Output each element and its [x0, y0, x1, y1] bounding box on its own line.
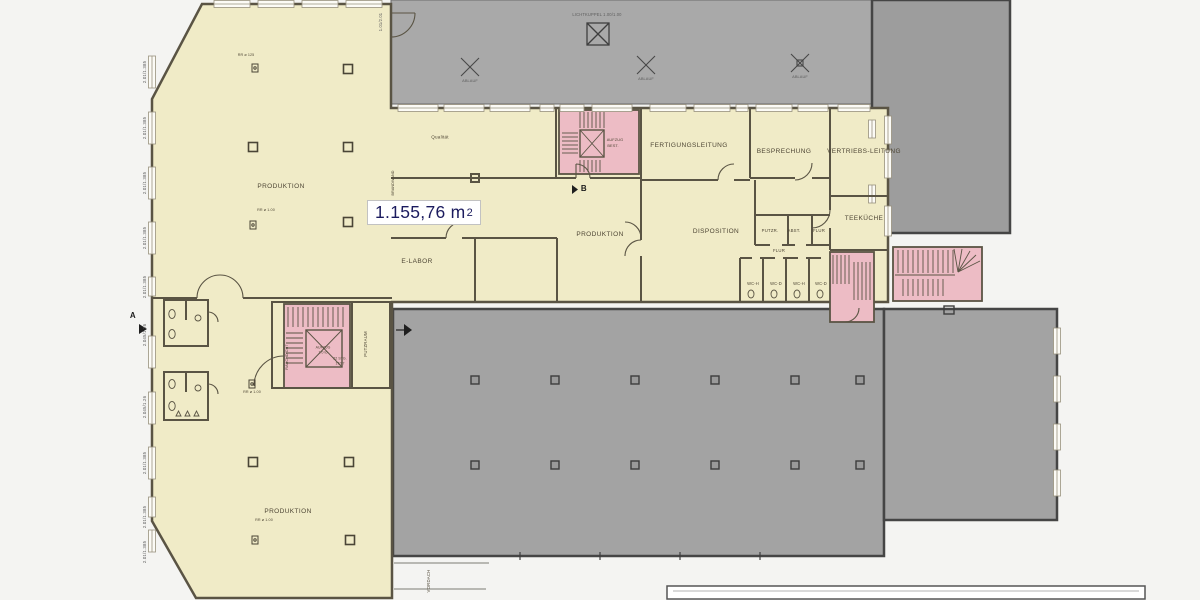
- dim-left-4: 2.01/1.385: [143, 276, 147, 298]
- label-rauchdicht: RAUCHDICHT: [286, 344, 290, 369]
- room-label-abst: ABST.: [788, 229, 801, 233]
- section-marker-b-label: B: [581, 185, 587, 193]
- stair-steps-label-line2: 17/27: [335, 362, 344, 366]
- label-lichtkuppel: LICHTKUPPEL 1.00/1.00: [572, 13, 621, 17]
- canopy-lines: [394, 563, 489, 589]
- label-rr100-1: RR ø 1.00: [257, 209, 275, 213]
- label-ablauf-1: ABLAUF: [462, 79, 478, 83]
- label-rr100-3: RR ø 1.00: [255, 519, 273, 523]
- room-label-wc-h-2: WC-H: [793, 282, 805, 286]
- area-annotation: 1.155,76 m2: [367, 200, 481, 225]
- room-label-putzr: PUTZR.: [762, 229, 779, 233]
- label-brandwand: BRANDWAND: [392, 171, 396, 196]
- floor-plan-canvas: PRODUKTION PRODUKTION PRODUKTION Qualitä…: [0, 0, 1200, 600]
- room-label-elabor: E-LABOR: [401, 259, 432, 266]
- dim-left-9: 2.01/1.385: [143, 541, 147, 563]
- room-label-wc-d-1: WC-D: [770, 282, 782, 286]
- elevator2-label-line2: 1.0 to: [318, 351, 327, 355]
- label-vordach: VORDACH: [427, 570, 431, 593]
- label-ablauf-2: ABLAUF: [638, 77, 654, 81]
- room-label-wc-h-1: WC-H: [747, 282, 759, 286]
- dim-left-5: 2.045/1.26: [143, 324, 147, 346]
- room-label-wc-d-2: WC-D: [815, 282, 827, 286]
- room-label-flur-lower: FLUR: [773, 249, 785, 253]
- label-rr125: RR ø 125: [238, 54, 255, 58]
- elevator2-label-line1: AUFZUG: [316, 346, 331, 350]
- floor-plan-drawing: [0, 0, 1200, 600]
- room-label-flur-upper: FLUR: [813, 229, 825, 233]
- room-label-putzraum: PUTZRAUM: [364, 331, 368, 356]
- room-label-fertigungsleitung: FERTIGUNGSLEITUNG: [650, 143, 727, 150]
- dim-left-0: 2.01/1.385: [143, 61, 147, 83]
- title-block: [667, 586, 1145, 599]
- section-marker-a-label: A: [130, 312, 136, 320]
- room-label-produktion-top: PRODUKTION: [257, 184, 304, 191]
- dim-left-1: 2.01/1.385: [143, 117, 147, 139]
- dim-door-top: 1.01/2.01: [379, 13, 383, 31]
- room-label-produktion-bottom: PRODUKTION: [264, 509, 311, 516]
- area-value: 1.155,76 m: [375, 202, 466, 223]
- dim-left-6: 2.045/1.26: [143, 396, 147, 418]
- elevator-label-line1: AUFZUG: [607, 138, 624, 142]
- room-label-produktion-mid: PRODUKTION: [576, 232, 623, 239]
- room-label-besprechung: BESPRECHUNG: [757, 149, 812, 156]
- room-label-qualitaet: Qualität: [431, 136, 448, 141]
- elevator-label-line2: BEST.: [607, 144, 618, 148]
- label-rr100-2: RR ø 1.00: [243, 391, 261, 395]
- room-label-teekueche: TEEKÜCHE: [845, 216, 884, 223]
- dim-left-2: 2.01/1.385: [143, 172, 147, 194]
- dim-left-8: 2.01/1.385: [143, 506, 147, 528]
- label-ablauf-3: ABLAUF: [792, 75, 808, 79]
- dim-left-3: 2.01/1.385: [143, 227, 147, 249]
- room-label-disposition: DISPOSITION: [693, 229, 739, 236]
- room-label-vertriebsleitung: VERTRIEBS-LEITUNG: [827, 149, 901, 156]
- stair-steps-label-line1: 22 STG.: [333, 357, 346, 361]
- dim-left-7: 2.01/1.385: [143, 452, 147, 474]
